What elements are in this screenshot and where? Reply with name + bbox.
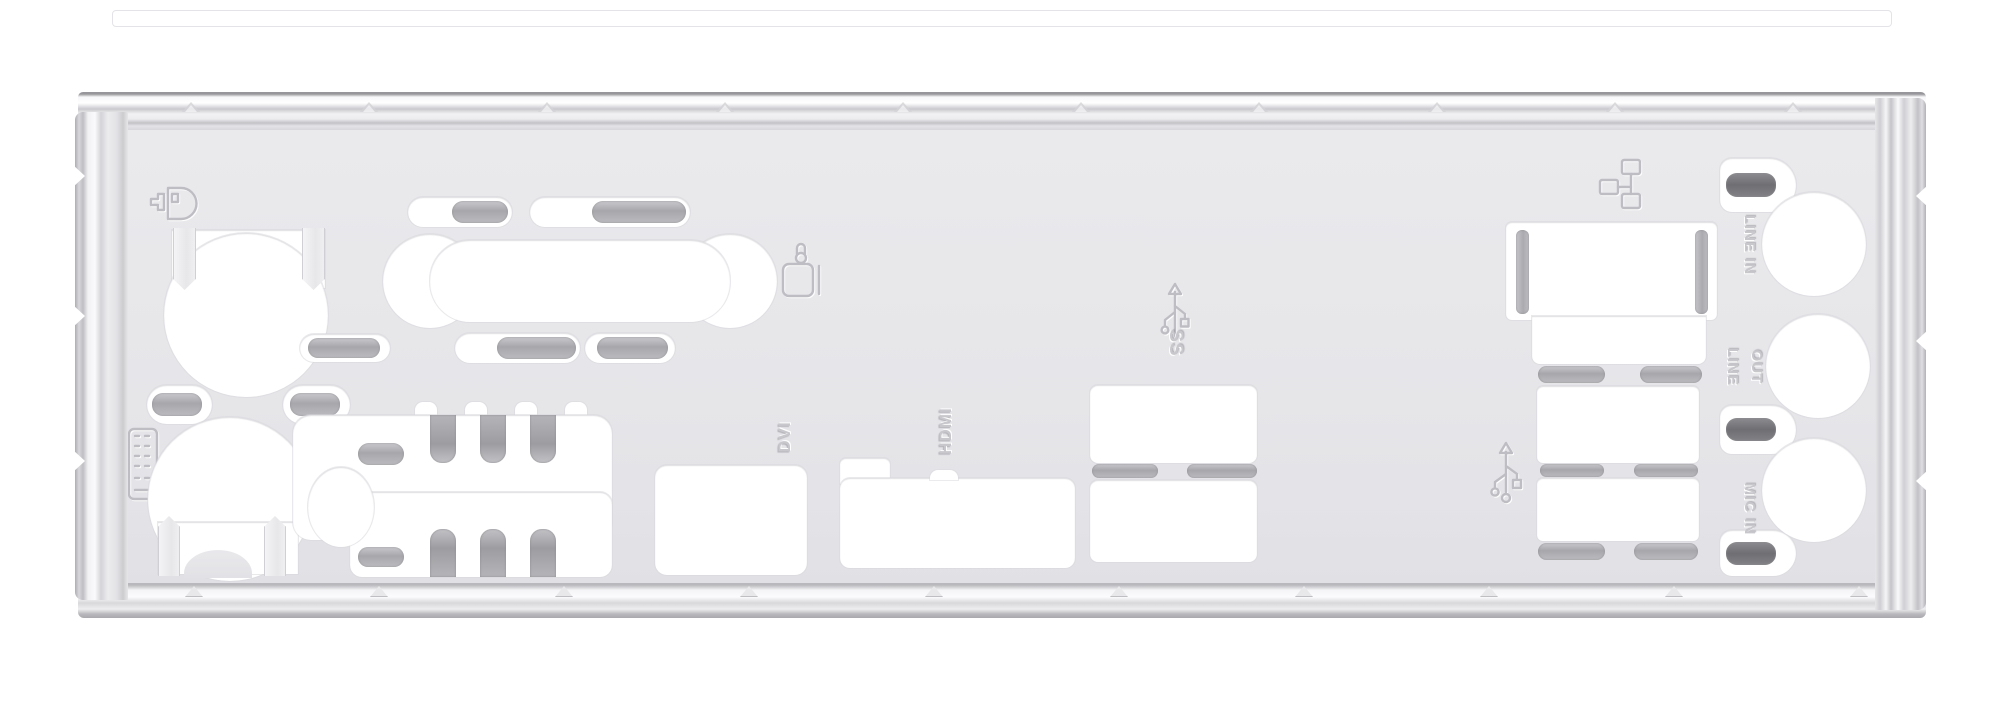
displayport-cutout (655, 465, 807, 575)
usb-trident-icon (1485, 436, 1527, 506)
display-connector-icon (777, 240, 825, 304)
spring-tab (497, 337, 576, 359)
audio-jack-cutout-mic-in (1762, 438, 1866, 542)
spring-tab (597, 337, 668, 359)
shield-top-flange (112, 10, 1892, 27)
mic-in-label: MIC IN (1739, 480, 1761, 538)
spring-finger (1695, 230, 1708, 314)
hdmi-label: HDMI (934, 392, 958, 470)
shield-top-rim (78, 92, 1926, 130)
spring-tab (1634, 543, 1698, 560)
spring-tab (1640, 366, 1702, 383)
usb3-port-cutout (1090, 385, 1257, 463)
product-photo-background: DVI HDMI SS (0, 0, 2000, 718)
spring-finger (430, 529, 456, 577)
spring-finger (173, 228, 196, 290)
line-in-label: LINE IN (1739, 212, 1761, 278)
audio-jack-cutout-line-out (1766, 314, 1870, 418)
spring-tab (1092, 464, 1158, 478)
spring-finger (302, 228, 325, 290)
line-out-label: OUT (1747, 339, 1767, 395)
spring-finger (530, 529, 556, 577)
spring-finger (480, 415, 506, 463)
spring-tab (1540, 464, 1604, 477)
spring-finger (264, 516, 286, 576)
spring-tab (1726, 542, 1776, 565)
usb-port-cutout (1537, 386, 1699, 463)
shield-bottom-rim (78, 583, 1926, 618)
usb-port-cutout (1537, 478, 1699, 541)
usb3-ss-label: SS (1164, 321, 1186, 365)
dvi-port-cutout (308, 467, 374, 547)
lan-port-cutout (1532, 316, 1706, 364)
shield-left-edge (75, 112, 128, 600)
spring-tab (1634, 464, 1698, 477)
cutout-notch (930, 470, 958, 480)
spring-tab (358, 443, 404, 465)
vga-port-cutout (430, 240, 730, 322)
spring-finger (1516, 230, 1529, 314)
usb3-port-cutout (1090, 480, 1257, 562)
spring-tab (1726, 418, 1776, 441)
ps2-mouse-icon (148, 182, 206, 226)
spring-tab (1187, 464, 1257, 478)
spring-tab (1726, 173, 1776, 197)
spring-tab (1538, 543, 1605, 560)
spring-finger (480, 529, 506, 577)
spring-tab (152, 393, 202, 416)
spring-finger (158, 516, 180, 576)
io-shield-plate: DVI HDMI SS (78, 92, 1926, 618)
spring-tab (308, 338, 380, 358)
ethernet-lan-icon (1592, 154, 1648, 212)
spring-tab (592, 201, 686, 223)
spring-finger (430, 415, 456, 463)
shield-right-edge (1875, 98, 1926, 610)
hdmi-port-cutout (840, 478, 1075, 568)
spring-tab (290, 393, 340, 416)
line-out-label: LINE (1723, 339, 1743, 395)
lan-port-cutout (1506, 222, 1717, 320)
spring-tab (358, 547, 404, 567)
spring-tab (452, 201, 508, 223)
spring-finger (530, 415, 556, 463)
spring-tab (1538, 366, 1605, 383)
dvi-label: DVI (773, 412, 797, 462)
audio-jack-cutout-line-in (1762, 192, 1866, 296)
